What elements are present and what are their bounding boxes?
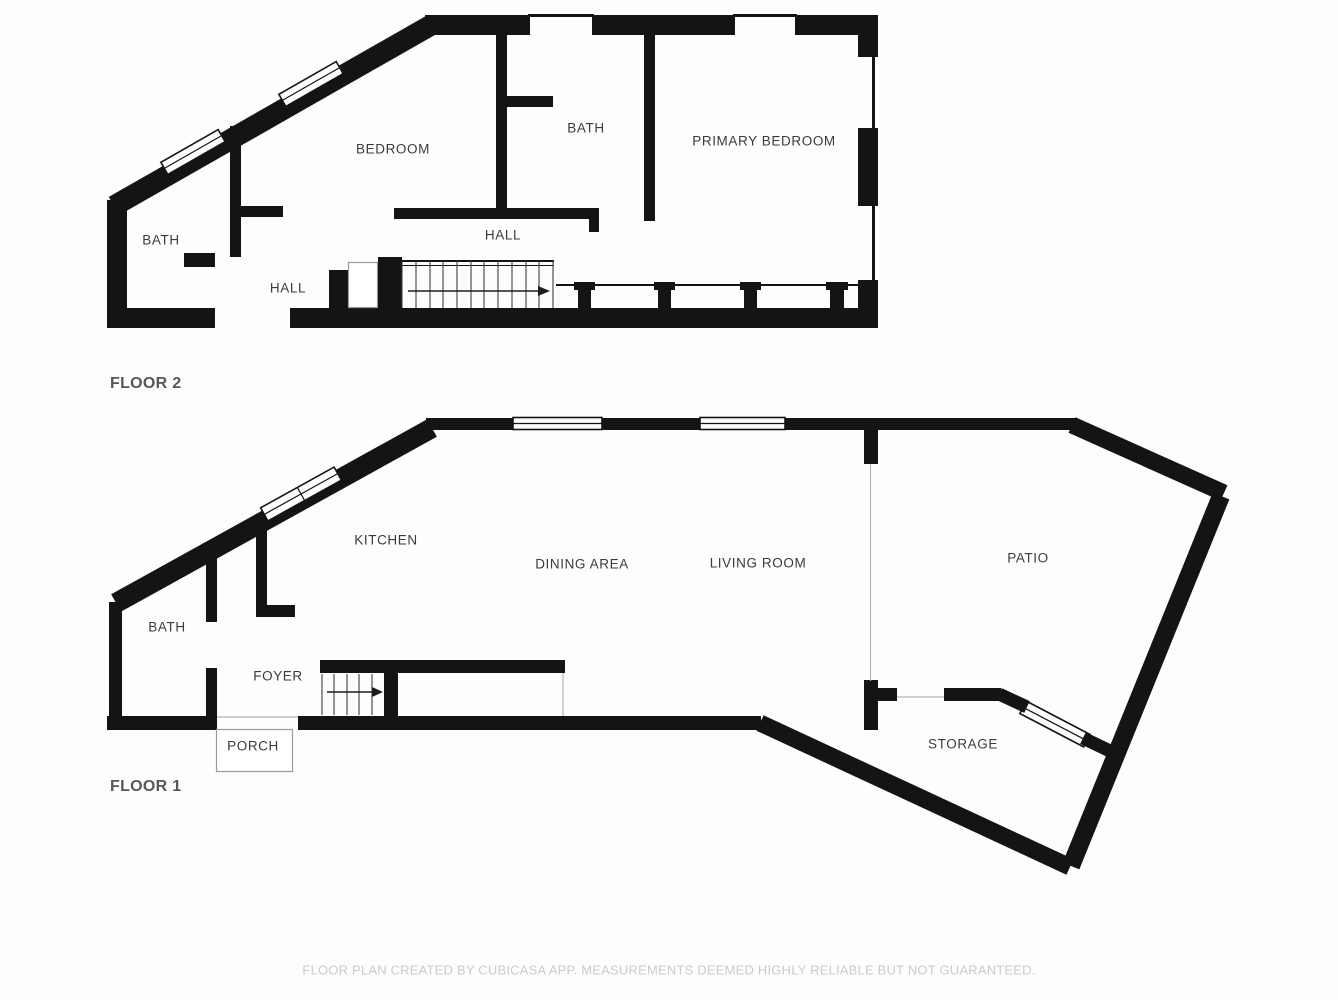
floor1-stairs bbox=[322, 674, 383, 715]
room-label-primary-bedroom: PRIMARY BEDROOM bbox=[692, 134, 836, 149]
room-label-foyer: FOYER bbox=[253, 669, 303, 684]
room-label-patio: PATIO bbox=[1007, 551, 1049, 566]
room-label-kitchen: KITCHEN bbox=[354, 533, 417, 548]
room-label-bath-floor2-mid: BATH bbox=[567, 121, 604, 136]
room-label-bath-floor1: BATH bbox=[148, 620, 185, 635]
room-label-porch: PORCH bbox=[227, 739, 279, 754]
room-label-hall-lower: HALL bbox=[270, 281, 306, 296]
disclaimer-text: FLOOR PLAN CREATED BY CUBICASA APP. MEAS… bbox=[302, 963, 1035, 978]
floor2-label: FLOOR 2 bbox=[110, 375, 181, 393]
room-label-bath-floor2-left: BATH bbox=[142, 233, 179, 248]
floor2-exterior-walls bbox=[107, 14, 878, 328]
floor1-label: FLOOR 1 bbox=[110, 778, 181, 796]
floor1-exterior-walls bbox=[107, 418, 1224, 867]
floor2-balustrade bbox=[556, 282, 878, 308]
floor2-interior-walls bbox=[184, 33, 655, 310]
floorplan-canvas bbox=[0, 0, 1338, 1000]
floor-plan-page: BATH BEDROOM BATH PRIMARY BEDROOM HALL H… bbox=[0, 0, 1338, 1000]
room-label-bedroom: BEDROOM bbox=[356, 142, 430, 157]
floor1-open-edges bbox=[217, 464, 944, 717]
room-label-hall-upper: HALL bbox=[485, 228, 521, 243]
room-label-living-room: LIVING ROOM bbox=[710, 556, 807, 571]
room-label-storage: STORAGE bbox=[928, 737, 998, 752]
room-label-dining-area: DINING AREA bbox=[535, 557, 629, 572]
